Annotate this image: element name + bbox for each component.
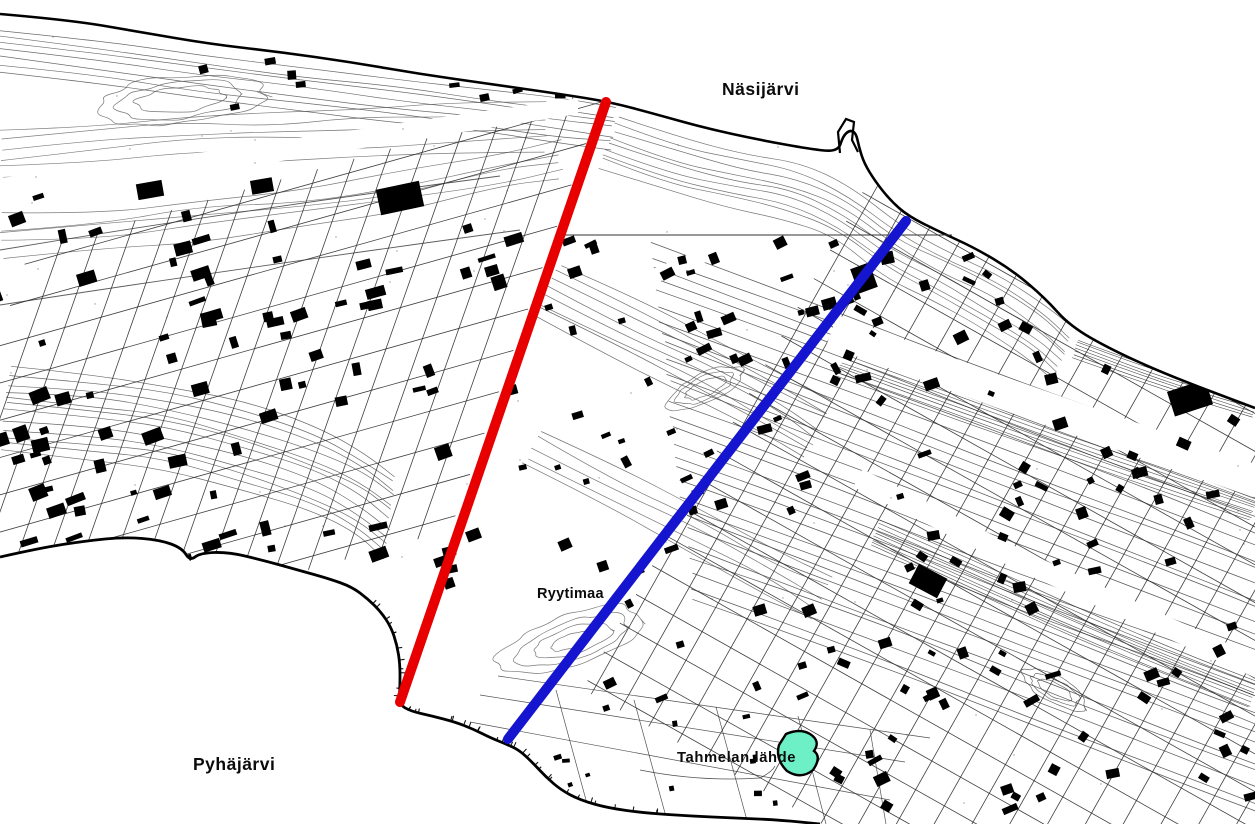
map-artwork-layer	[0, 14, 1255, 824]
historical-map-image: Näsijärvi Pyhäjärvi Ryytimaa Tahmelan lä…	[0, 0, 1255, 824]
map-canvas: Näsijärvi Pyhäjärvi Ryytimaa Tahmelan lä…	[0, 0, 1255, 824]
lake-label-pyhajarvi: Pyhäjärvi	[193, 754, 275, 774]
lake-label-nasijarvi: Näsijärvi	[722, 79, 799, 99]
place-label-ryytimaa: Ryytimaa	[537, 586, 605, 602]
place-label-tahmelan-lahde: Tahmelan lähde	[677, 750, 796, 766]
